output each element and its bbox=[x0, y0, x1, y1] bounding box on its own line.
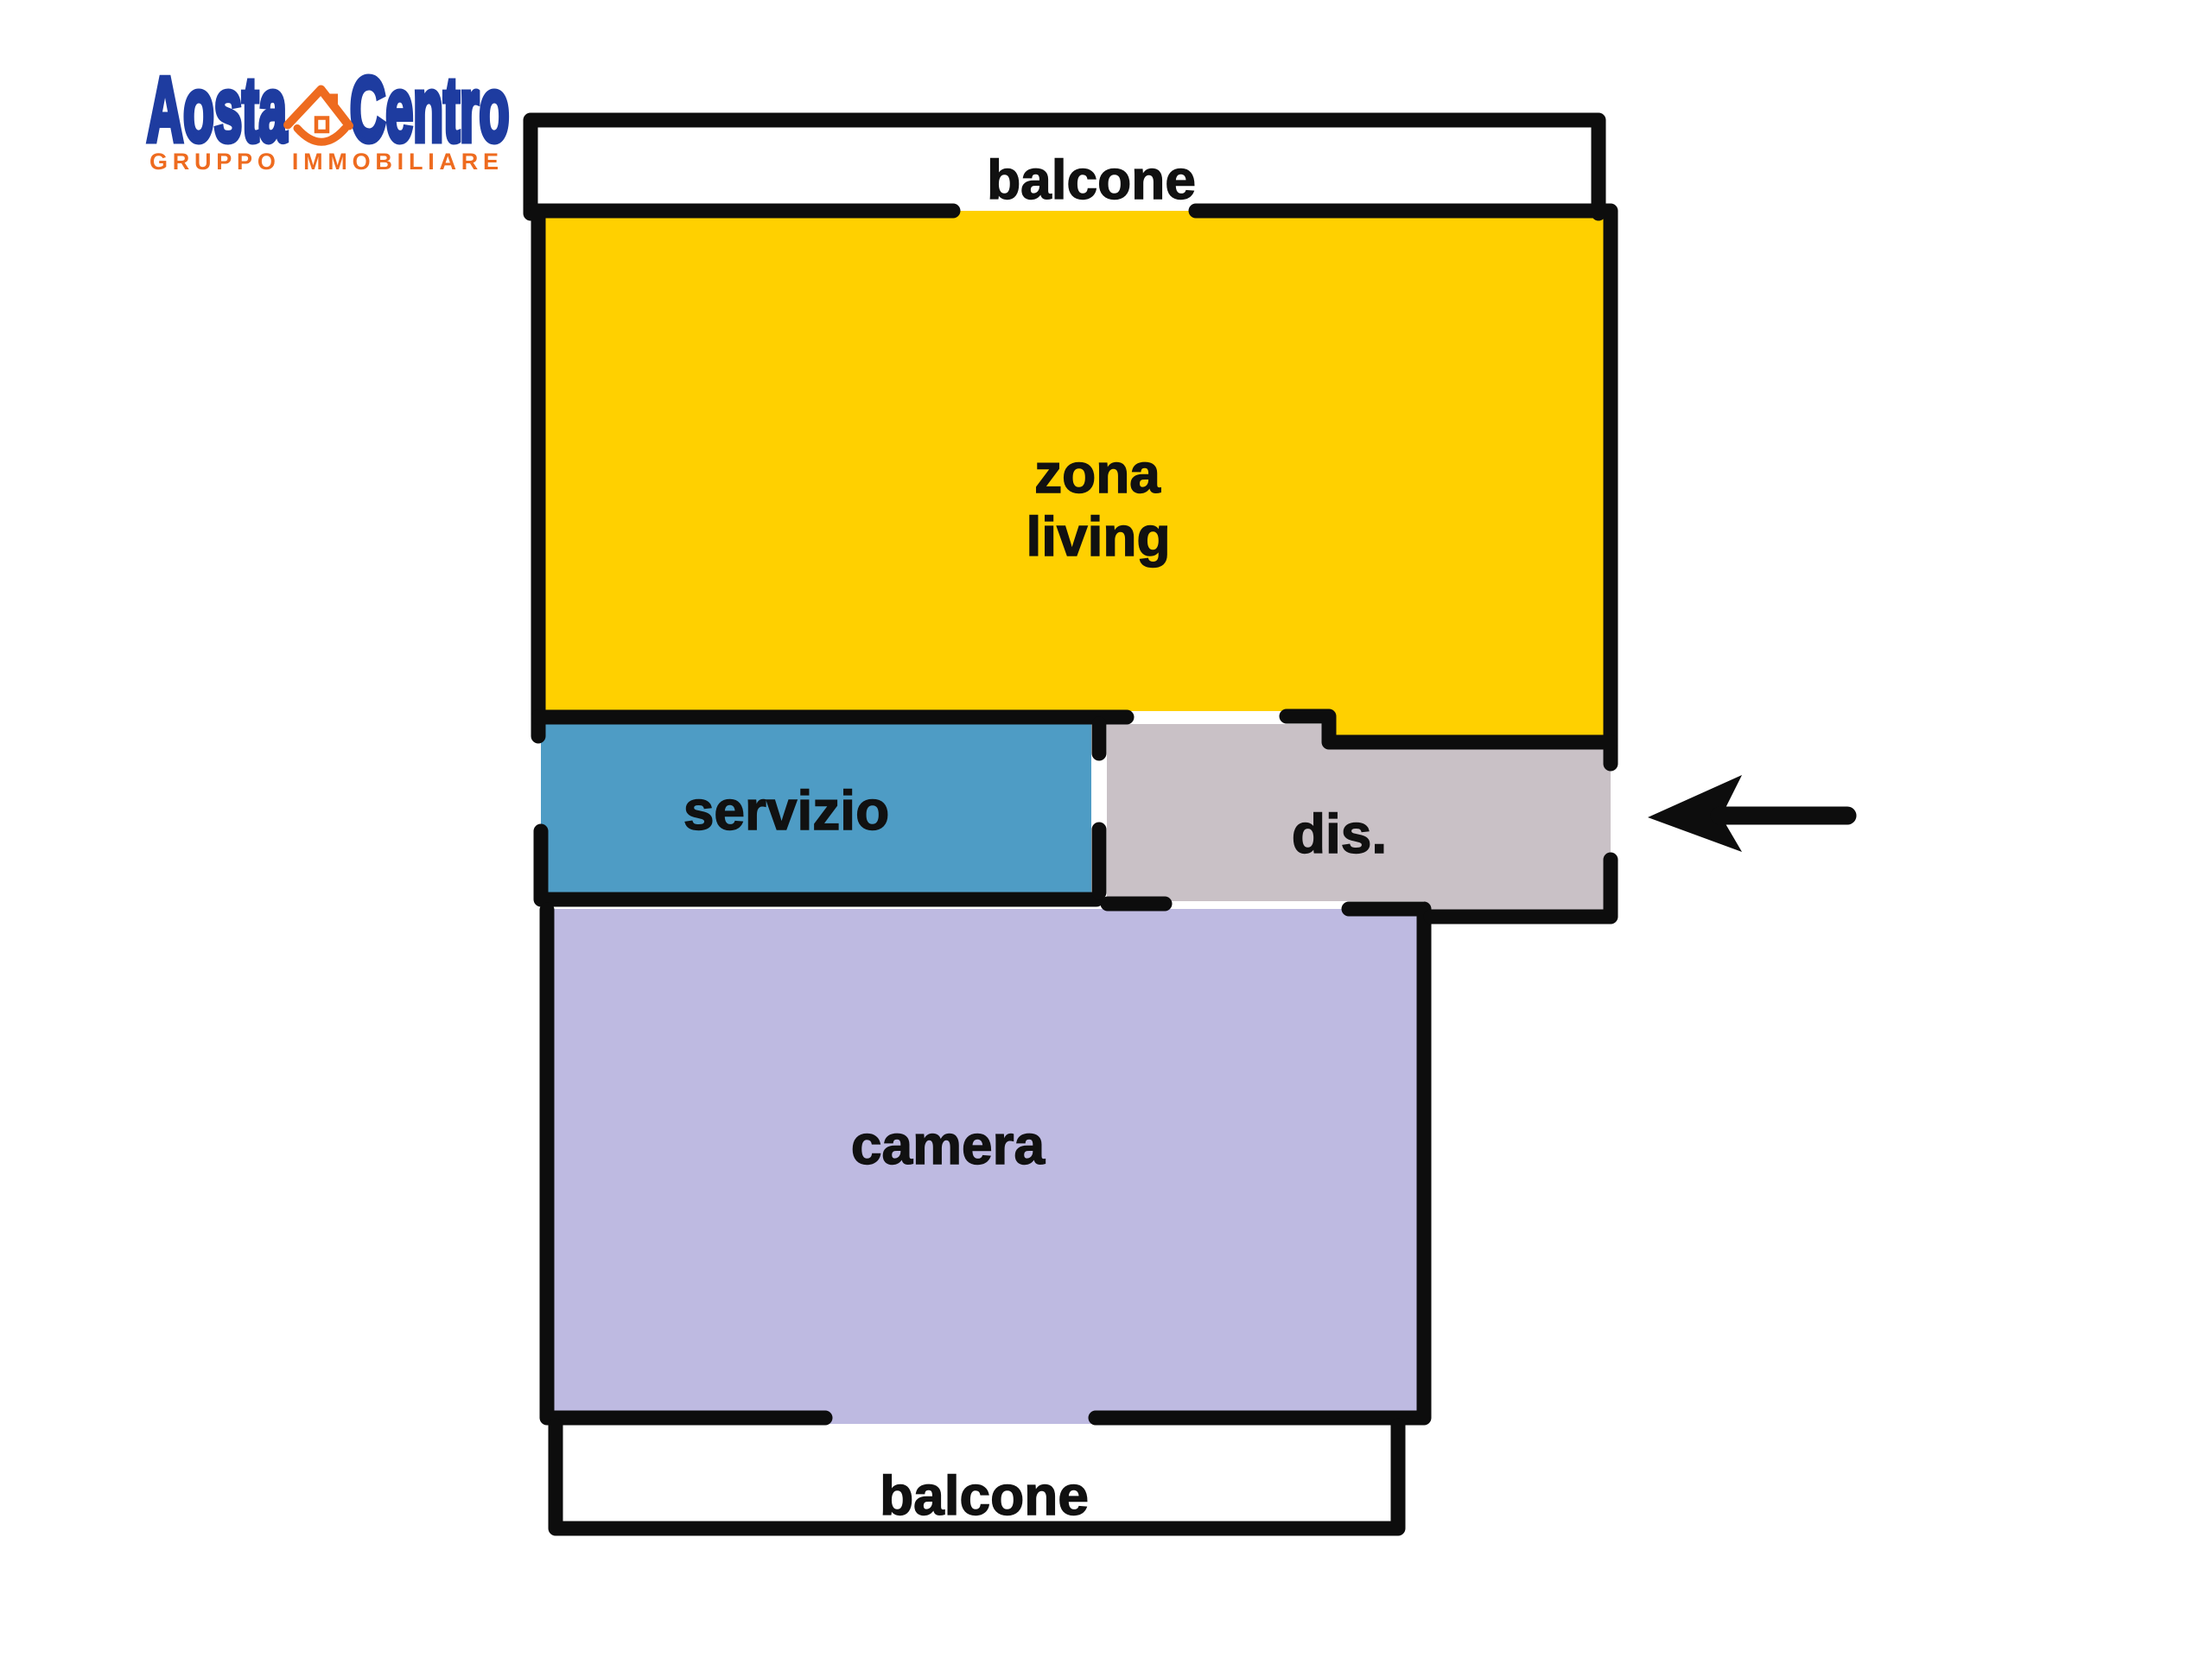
svg-text:balcone: balcone bbox=[987, 149, 1196, 211]
svg-text:Centro: Centro bbox=[350, 59, 509, 161]
svg-text:dis.: dis. bbox=[1292, 803, 1387, 865]
svg-text:zona: zona bbox=[1034, 442, 1160, 505]
svg-text:balcone: balcone bbox=[880, 1465, 1089, 1527]
svg-text:living: living bbox=[1026, 505, 1170, 568]
svg-text:servizio: servizio bbox=[683, 779, 889, 842]
svg-text:camera: camera bbox=[851, 1114, 1046, 1176]
svg-text:Aosta: Aosta bbox=[147, 60, 288, 162]
